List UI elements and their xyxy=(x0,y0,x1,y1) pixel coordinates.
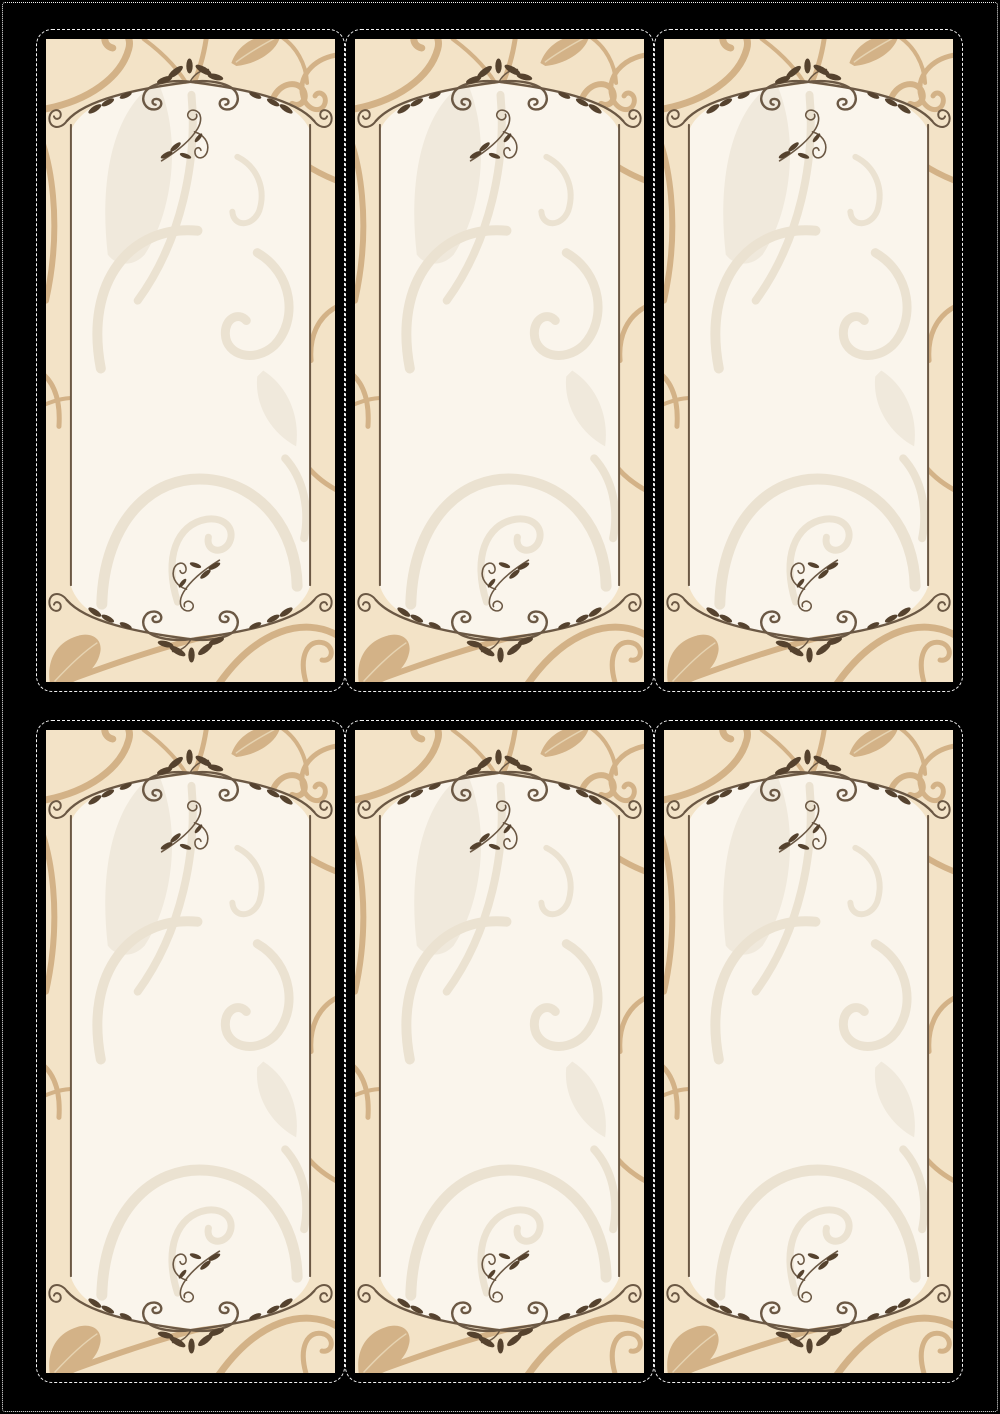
label-card xyxy=(654,720,963,1383)
ornamental-frame-art xyxy=(355,730,644,1373)
label-grid xyxy=(36,29,963,1383)
label-card xyxy=(36,29,345,692)
ornamental-frame-art xyxy=(46,39,335,682)
label-card xyxy=(36,720,345,1383)
label-card xyxy=(654,29,963,692)
label-card xyxy=(345,720,654,1383)
label-sheet xyxy=(0,0,1000,1414)
label-card xyxy=(345,29,654,692)
ornamental-frame-art xyxy=(46,730,335,1373)
ornamental-frame-art xyxy=(355,39,644,682)
ornamental-frame-art xyxy=(664,730,953,1373)
ornamental-frame-art xyxy=(664,39,953,682)
